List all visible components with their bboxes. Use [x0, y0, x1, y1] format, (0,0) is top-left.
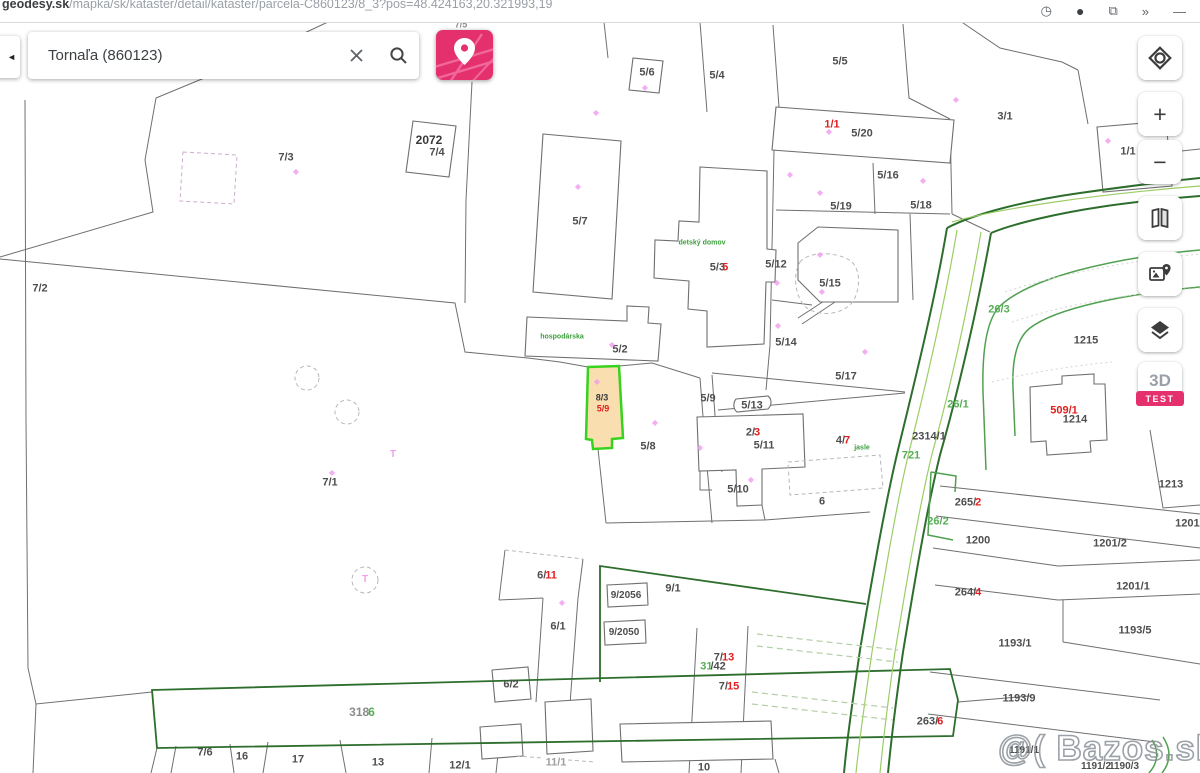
browser-bar: geodesy.sk/mapka/sk/kataster/detail/kata…	[0, 0, 1200, 23]
zoom-in-button[interactable]: +	[1138, 92, 1182, 136]
browser-toolbar-icons: ◷●⧉»—	[1041, 0, 1186, 22]
minus-icon: −	[1153, 149, 1166, 176]
search-bar[interactable]: Tornaľa (860123)	[28, 32, 419, 79]
watermark: @( Bazos.sk	[998, 729, 1200, 769]
crosshair-diamond-icon	[1147, 45, 1173, 71]
map-pin-icon	[436, 30, 493, 80]
building-footprints	[406, 58, 1172, 762]
profile-icon[interactable]: ●	[1076, 3, 1084, 19]
layers-button[interactable]	[1138, 308, 1182, 352]
clear-search-button[interactable]	[335, 32, 377, 79]
layers-icon	[1148, 318, 1172, 342]
map-preview-button[interactable]	[436, 30, 493, 80]
extensions-overflow-icon[interactable]: »	[1142, 4, 1149, 19]
test-badge: TEST	[1136, 391, 1184, 406]
collapse-panel-button[interactable]: ◄	[0, 36, 20, 78]
minimize-icon[interactable]: —	[1173, 4, 1186, 19]
clock-icon[interactable]: ◷	[1041, 3, 1052, 19]
places-photos-button[interactable]	[1138, 252, 1182, 296]
collapse-arrow-icon: ◄	[7, 52, 16, 62]
plus-icon: +	[1153, 101, 1166, 128]
url-domain: geodesy.sk	[2, 0, 69, 11]
url-path: /mapka/sk/kataster/detail/kataster/parce…	[69, 0, 552, 11]
photos-pin-icon	[1147, 261, 1173, 287]
map-compare-icon	[1148, 206, 1172, 230]
search-input[interactable]: Tornaľa (860123)	[28, 47, 335, 64]
address-bar-url[interactable]: geodesy.sk/mapka/sk/kataster/detail/kata…	[2, 0, 553, 11]
cadastral-map[interactable]	[0, 0, 1200, 773]
share-icon[interactable]: ⧉	[1108, 3, 1117, 19]
locate-button[interactable]	[1138, 36, 1182, 80]
selected-parcel[interactable]	[586, 366, 623, 449]
search-button[interactable]	[377, 32, 419, 79]
compare-maps-button[interactable]	[1138, 196, 1182, 240]
search-icon	[389, 46, 408, 65]
app-window: 7/27/320727/47/55/75/65/45/51/15/203/11/…	[0, 0, 1200, 773]
three-d-label: 3D	[1149, 371, 1171, 391]
zoom-out-button[interactable]: −	[1138, 140, 1182, 184]
close-icon	[349, 48, 364, 63]
